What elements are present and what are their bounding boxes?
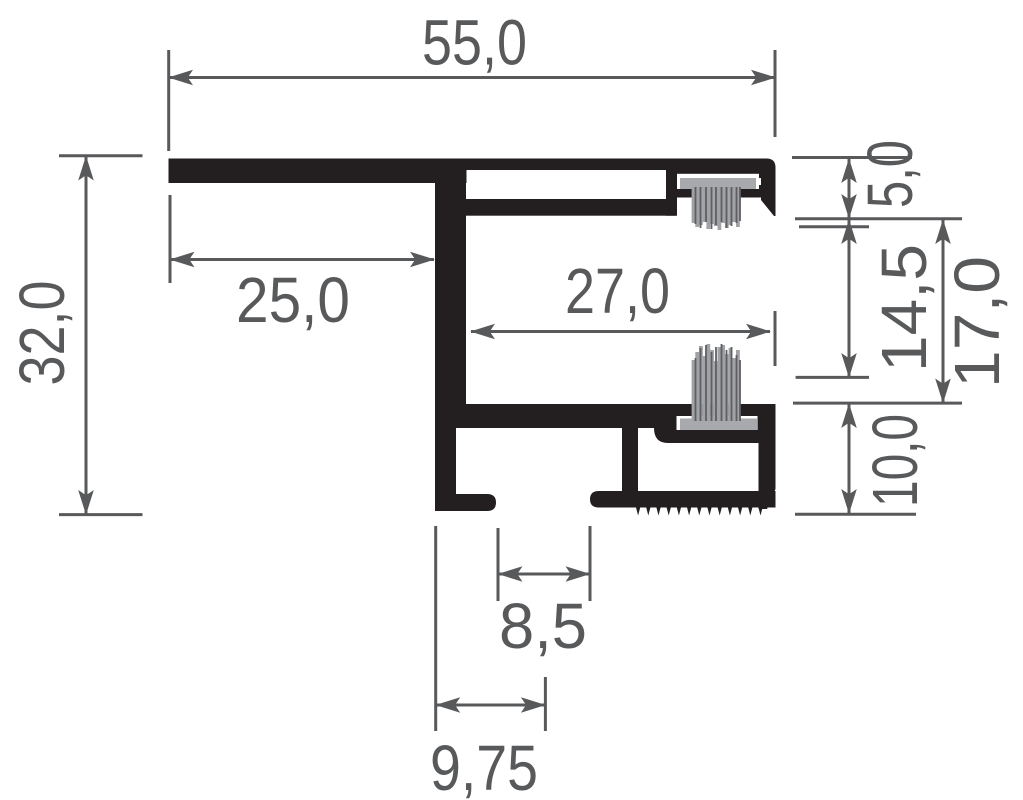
svg-text:8,5: 8,5 (499, 590, 587, 662)
svg-text:14,5: 14,5 (868, 244, 940, 372)
svg-text:32,0: 32,0 (6, 281, 78, 386)
svg-text:55,0: 55,0 (422, 7, 527, 79)
svg-text:25,0: 25,0 (236, 264, 350, 336)
svg-text:10,0: 10,0 (859, 414, 931, 507)
svg-text:5,0: 5,0 (854, 140, 926, 208)
svg-text:9,75: 9,75 (430, 732, 538, 800)
svg-text:27,0: 27,0 (565, 255, 670, 327)
svg-text:17,0: 17,0 (941, 256, 1013, 388)
